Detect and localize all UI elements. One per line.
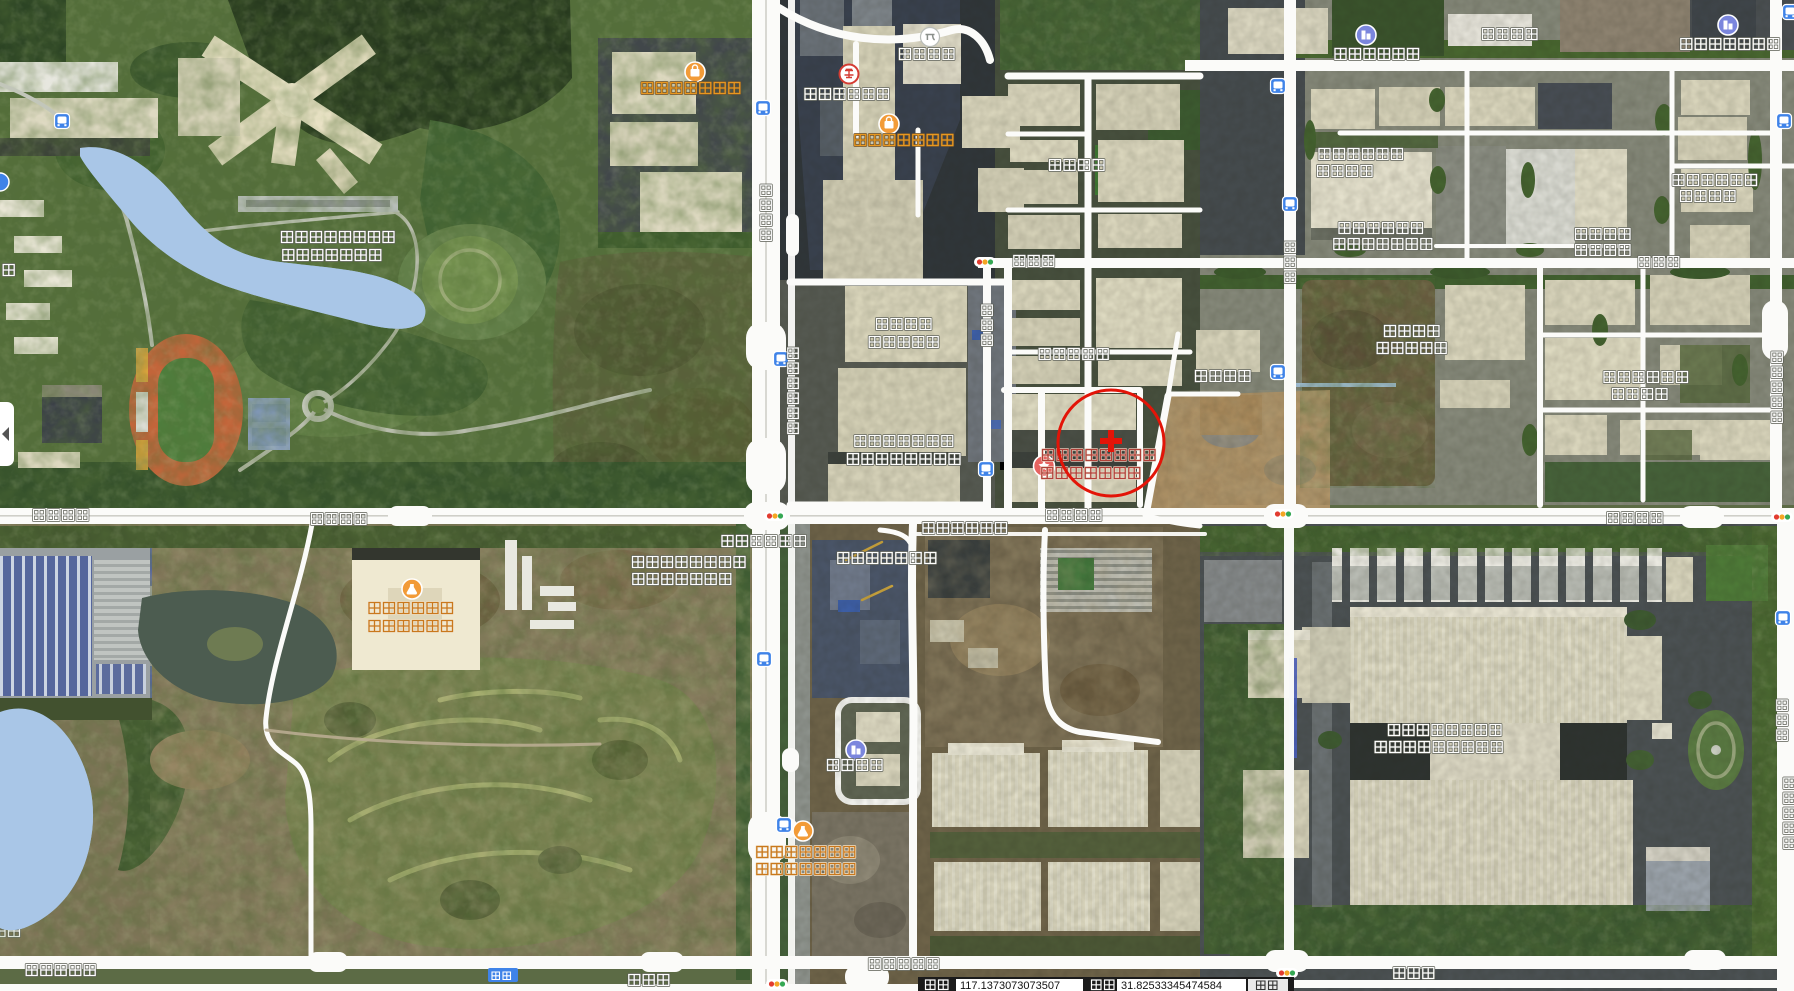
svg-text:117.1373073073507: 117.1373073073507 xyxy=(960,980,1060,991)
svg-text:31.82533345474584: 31.82533345474584 xyxy=(1121,980,1222,991)
